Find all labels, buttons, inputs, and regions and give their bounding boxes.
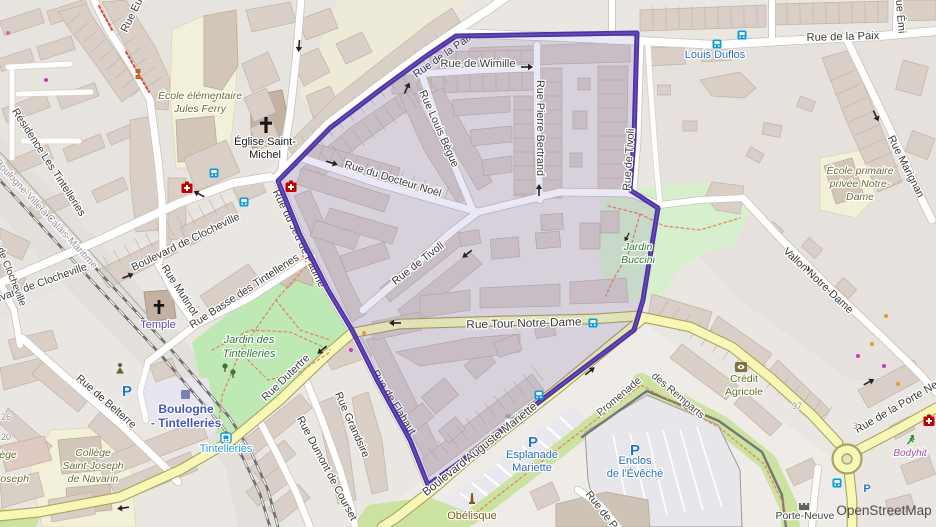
svg-text:Rue Pierre Bertrand: Rue Pierre Bertrand — [534, 80, 546, 176]
svg-text:Rue de Wimille: Rue de Wimille — [440, 58, 515, 70]
svg-text:Buccini: Buccini — [621, 254, 656, 266]
svg-text:Enclos: Enclos — [618, 455, 652, 467]
svg-text:de l'Évêché: de l'Évêché — [607, 467, 664, 480]
svg-text:Michel: Michel — [249, 149, 281, 161]
svg-text:Bodyhit: Bodyhit — [893, 448, 928, 459]
svg-text:Crédit: Crédit — [730, 373, 758, 385]
svg-text:P: P — [122, 383, 132, 400]
svg-text:Joseph: Joseph — [0, 473, 29, 485]
svg-text:Saint-Joseph: Saint-Joseph — [62, 460, 123, 472]
svg-text:OpenStreetMap: OpenStreetMap — [836, 503, 931, 518]
svg-text:École élémentaire: École élémentaire — [158, 89, 242, 102]
svg-text:Tintelleries: Tintelleries — [222, 348, 276, 360]
svg-text:Jules Ferry: Jules Ferry — [173, 103, 227, 115]
svg-text:Dame: Dame — [846, 191, 874, 203]
svg-text:Rue de la Paix: Rue de la Paix — [806, 30, 879, 44]
svg-text:Temple: Temple — [140, 319, 175, 331]
svg-text:P: P — [863, 483, 870, 495]
svg-text:Obélisque: Obélisque — [447, 510, 497, 522]
svg-text:Esplanade: Esplanade — [506, 449, 558, 461]
svg-text:Boulogne: Boulogne — [158, 402, 214, 416]
svg-text:École primaire: École primaire — [826, 164, 893, 177]
svg-text:3: 3 — [852, 421, 857, 431]
svg-text:Collège: Collège — [75, 447, 111, 459]
svg-text:Jardin des: Jardin des — [223, 334, 275, 346]
svg-text:Mariette: Mariette — [512, 462, 552, 474]
svg-text:26: 26 — [1, 412, 11, 422]
svg-text:- Tintelleries: - Tintelleries — [151, 416, 222, 430]
svg-text:Tintelleries: Tintelleries — [200, 443, 253, 455]
svg-text:Jardin: Jardin — [623, 241, 653, 253]
svg-text:20: 20 — [1, 432, 11, 442]
svg-text:Église Saint-: Église Saint- — [234, 135, 296, 148]
svg-text:de Navarin: de Navarin — [68, 473, 119, 485]
svg-text:Porte-Neuve: Porte-Neuve — [776, 510, 835, 522]
svg-text:ège: ège — [0, 449, 17, 461]
svg-text:privée Notre-: privée Notre- — [829, 178, 891, 190]
svg-text:Louis Duflos: Louis Duflos — [685, 49, 746, 61]
svg-text:Agricole: Agricole — [725, 386, 763, 398]
svg-text:97: 97 — [792, 401, 802, 411]
